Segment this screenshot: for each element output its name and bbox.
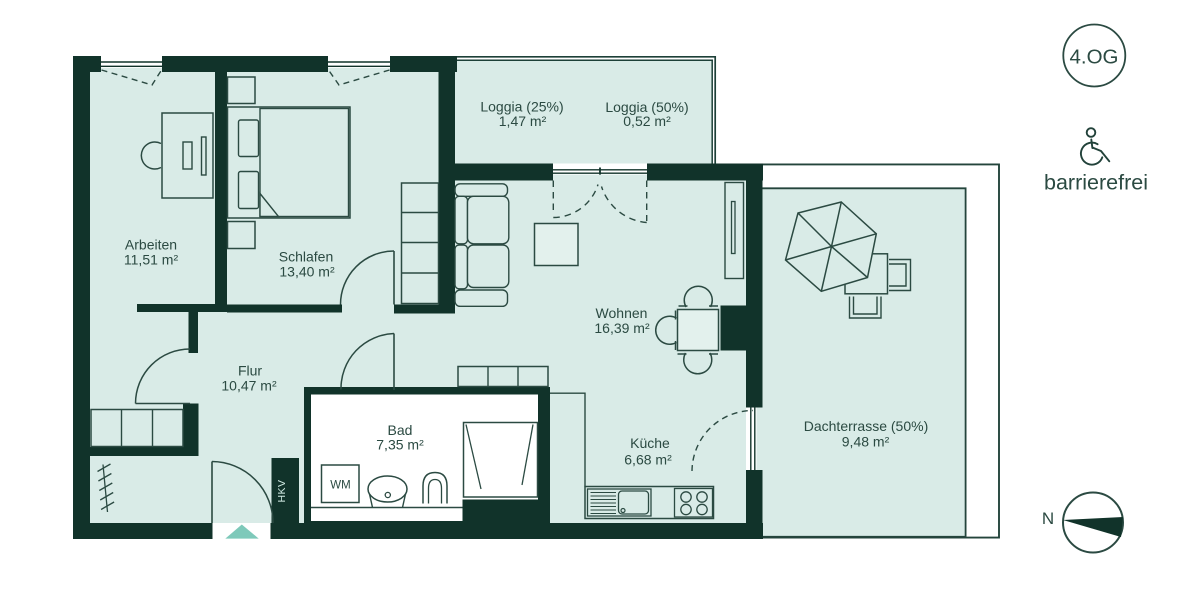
svg-text:Schlafen: Schlafen <box>279 248 333 264</box>
svg-text:HKV: HKV <box>276 479 288 502</box>
svg-text:Arbeiten: Arbeiten <box>125 236 177 252</box>
svg-text:6,68 m²: 6,68 m² <box>624 451 672 467</box>
svg-text:10,47 m²: 10,47 m² <box>221 377 277 393</box>
svg-text:0,52 m²: 0,52 m² <box>623 113 671 129</box>
svg-text:4.OG: 4.OG <box>1070 46 1119 69</box>
svg-text:Küche: Küche <box>630 435 670 451</box>
svg-text:9,48 m²: 9,48 m² <box>842 433 890 449</box>
svg-text:1,47 m²: 1,47 m² <box>499 113 547 129</box>
svg-text:Dachterrasse (50%): Dachterrasse (50%) <box>804 418 929 434</box>
svg-text:11,51 m²: 11,51 m² <box>124 251 179 267</box>
svg-text:barrierefrei: barrierefrei <box>1044 171 1148 195</box>
svg-text:Flur: Flur <box>238 362 262 378</box>
svg-text:16,39 m²: 16,39 m² <box>594 320 650 336</box>
svg-text:N: N <box>1042 509 1054 528</box>
svg-text:7,35 m²: 7,35 m² <box>376 436 424 452</box>
svg-text:13,40 m²: 13,40 m² <box>279 263 335 279</box>
svg-text:WM: WM <box>330 480 350 492</box>
svg-text:Wohnen: Wohnen <box>596 305 648 321</box>
